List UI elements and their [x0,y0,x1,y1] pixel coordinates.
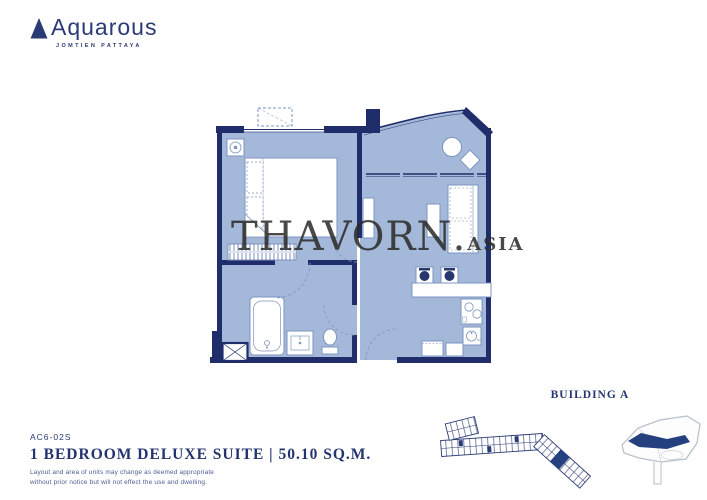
kitchen-sink-icon [463,327,481,345]
watermark-tld: ASIA [467,234,524,255]
disclaimer-line-2: without prior notice but will not effect… [30,478,371,488]
watermark: THAVORN.ASIA [231,217,525,257]
brand-logo: Aquarous JOMTIEN PATTAYA [30,16,157,49]
building-locator [425,405,707,500]
watermark-dot: . [453,217,466,257]
logo-triangle-icon [30,18,48,39]
kitchen-counter-icon [412,283,491,297]
basin-icon [287,331,313,355]
building-a-floorplate [441,417,591,488]
unit-info: AC6-02S 1 BEDROOM DELUXE SUITE | 50.10 S… [30,432,371,487]
building-label: BUILDING A [545,389,635,401]
stove-icon [461,299,482,324]
toilet-icon [322,329,338,354]
bathtub-icon [250,297,284,355]
brochure-page: Aquarous JOMTIEN PATTAYA [0,0,707,500]
watermark-brand: THAVORN [231,217,453,257]
brand-tagline: JOMTIEN PATTAYA [56,43,157,49]
balcony-table-icon [443,138,462,157]
canister-icon [416,267,433,283]
canister-icon [441,267,458,283]
disclaimer-line-1: Layout and area of units may change as d… [30,468,371,478]
site-key-map [622,416,700,484]
unit-code: AC6-02S [30,432,371,442]
brand-name: Aquarous [51,16,157,39]
condenser-icon [258,108,292,126]
unit-disclaimer: Layout and area of units may change as d… [30,468,371,487]
unit-title: 1 BEDROOM DELUXE SUITE | 50.10 SQ.M. [30,446,371,464]
service-shaft-icon [223,343,248,361]
ac-unit-icon [227,139,244,156]
cabinet-icon [422,341,463,356]
